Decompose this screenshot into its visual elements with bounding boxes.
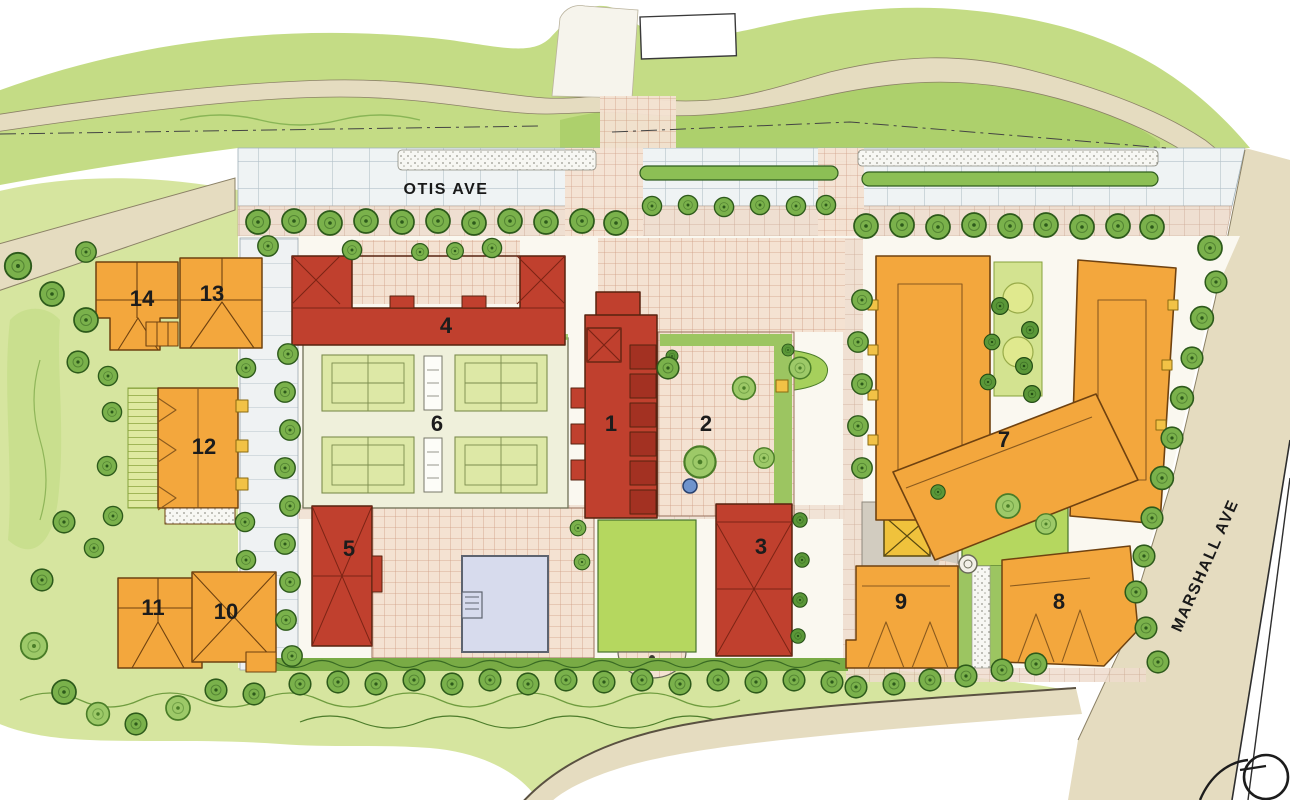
tree-icon — [67, 351, 89, 373]
tree-icon — [919, 669, 941, 691]
tree-icon — [848, 416, 868, 436]
tree-icon — [1125, 581, 1147, 603]
tree-icon — [631, 669, 653, 691]
tree-icon — [852, 458, 872, 478]
tree-icon — [926, 215, 950, 239]
tree-icon — [845, 676, 867, 698]
tree-icon — [848, 332, 868, 352]
tree-icon — [793, 593, 807, 607]
tree-icon — [745, 671, 767, 693]
tree-icon — [327, 671, 349, 693]
tree-icon — [97, 456, 116, 475]
tree-icon — [570, 520, 586, 536]
tree-icon — [816, 195, 835, 214]
tree-icon — [447, 243, 464, 260]
south-hedge — [252, 658, 848, 671]
tree-icon — [125, 713, 147, 735]
tree-icon — [1135, 617, 1157, 639]
building-9 — [846, 566, 958, 668]
tree-icon — [782, 344, 794, 356]
tree-icon — [482, 238, 501, 257]
pool-courtyard — [372, 508, 594, 658]
tree-icon — [733, 377, 756, 400]
tree-icon — [166, 696, 190, 720]
garden-strip-west — [128, 388, 158, 508]
tree-icon — [883, 673, 905, 695]
tree-icon — [318, 211, 342, 235]
tree-icon — [789, 357, 811, 379]
tree-icon — [684, 446, 715, 477]
tree-icon — [1171, 387, 1194, 410]
tree-icon — [31, 569, 53, 591]
tree-icon — [642, 196, 661, 215]
tree-icon — [5, 253, 31, 279]
tree-icon — [280, 572, 300, 592]
tree-icon — [278, 344, 298, 364]
tree-icon — [87, 703, 110, 726]
tree-icon — [931, 485, 945, 499]
tree-icon — [962, 213, 986, 237]
tree-icon — [21, 633, 47, 659]
tree-icon — [40, 282, 64, 306]
tree-icon — [275, 382, 295, 402]
building-4 — [292, 240, 565, 345]
tree-icon — [354, 209, 378, 233]
hedge-median — [862, 172, 1158, 186]
tennis-courts — [303, 334, 568, 508]
building-11 — [118, 578, 202, 668]
tree-icon — [984, 334, 1000, 350]
tree-icon — [275, 458, 295, 478]
tree-icon — [1198, 236, 1222, 260]
tree-icon — [996, 494, 1020, 518]
tree-icon — [53, 511, 75, 533]
tree-icon — [707, 669, 729, 691]
tree-icon — [246, 210, 270, 234]
tree-icon — [365, 673, 387, 695]
tree-icon — [102, 402, 121, 421]
building-3 — [716, 504, 792, 656]
tree-icon — [854, 214, 878, 238]
tree-icon — [76, 242, 96, 262]
tree-icon — [852, 374, 872, 394]
tree-icon — [998, 214, 1022, 238]
tree-icon — [1036, 514, 1056, 534]
tree-icon — [236, 358, 255, 377]
tree-icon — [1191, 307, 1214, 330]
tree-icon — [243, 683, 265, 705]
tree-icon — [786, 196, 805, 215]
tree-icon — [236, 550, 255, 569]
tree-icon — [1161, 427, 1183, 449]
planted-median — [858, 150, 1158, 166]
tree-icon — [235, 512, 254, 531]
tree-icon — [426, 209, 450, 233]
tree-icon — [342, 240, 361, 259]
tree-icon — [574, 554, 590, 570]
tree-icon — [1141, 507, 1163, 529]
tree-icon — [103, 506, 122, 525]
tree-icon — [1034, 213, 1058, 237]
tree-icon — [1070, 215, 1094, 239]
tree-icon — [74, 308, 98, 332]
tree-icon — [441, 673, 463, 695]
stone-path — [972, 566, 990, 668]
tree-icon — [1205, 271, 1227, 293]
tree-icon — [714, 197, 733, 216]
building-12 — [158, 388, 248, 524]
tree-icon — [1022, 322, 1039, 339]
tree-icon — [289, 673, 311, 695]
hedge-median — [640, 166, 838, 180]
tree-icon — [280, 420, 300, 440]
tree-icon — [390, 210, 414, 234]
tree-icon — [669, 673, 691, 695]
tree-icon — [852, 290, 872, 310]
tree-icon — [280, 496, 300, 516]
outlined-structure — [640, 14, 736, 59]
tree-icon — [1024, 386, 1041, 403]
tree-icon — [517, 673, 539, 695]
tree-icon — [678, 195, 697, 214]
tree-icon — [955, 665, 977, 687]
tree-icon — [1181, 347, 1203, 369]
tree-icon — [980, 374, 996, 390]
tree-icon — [555, 669, 577, 691]
tree-icon — [593, 671, 615, 693]
tree-icon — [754, 448, 774, 468]
tree-icon — [276, 610, 296, 630]
tree-icon — [791, 629, 805, 643]
site-plan: OTIS AVE MARSHALL AVE 1 2 3 4 5 6 7 8 9 … — [0, 0, 1290, 800]
tree-icon — [282, 646, 302, 666]
tree-icon — [498, 209, 522, 233]
pool-steps — [462, 592, 482, 618]
tree-icon — [570, 209, 594, 233]
tree-icon — [1025, 653, 1047, 675]
fountain — [959, 555, 977, 573]
tree-icon — [1133, 545, 1155, 567]
tree-icon — [275, 534, 295, 554]
tree-icon — [604, 211, 628, 235]
tree-icon — [657, 357, 679, 379]
tree-icon — [1106, 214, 1130, 238]
tree-icon — [750, 195, 769, 214]
tree-icon — [795, 553, 809, 567]
building-8 — [1002, 546, 1138, 666]
tree-icon — [84, 538, 103, 557]
tree-icon — [205, 679, 227, 701]
tree-icon — [793, 513, 807, 527]
building-10 — [192, 572, 276, 672]
tree-icon — [992, 298, 1009, 315]
tree-icon — [783, 669, 805, 691]
tree-icon — [1140, 215, 1164, 239]
building-5 — [312, 506, 382, 646]
tree-icon — [258, 236, 278, 256]
tree-icon — [991, 659, 1013, 681]
tree-icon — [98, 366, 117, 385]
tree-icon — [821, 671, 843, 693]
tree-icon — [403, 669, 425, 691]
planted-median — [398, 150, 596, 170]
courtyard-2 — [658, 332, 794, 516]
tree-icon — [1016, 358, 1033, 375]
tree-icon — [412, 244, 429, 261]
fountain-pool — [683, 479, 697, 493]
tree-icon — [1147, 651, 1169, 673]
site-plan-drawing — [0, 0, 1290, 800]
tree-icon — [1151, 467, 1174, 490]
building-13 — [180, 258, 262, 348]
tree-icon — [890, 213, 914, 237]
tree-icon — [282, 209, 306, 233]
tree-icon — [462, 211, 486, 235]
tree-icon — [534, 210, 558, 234]
tree-icon — [52, 680, 76, 704]
tree-icon — [479, 669, 501, 691]
